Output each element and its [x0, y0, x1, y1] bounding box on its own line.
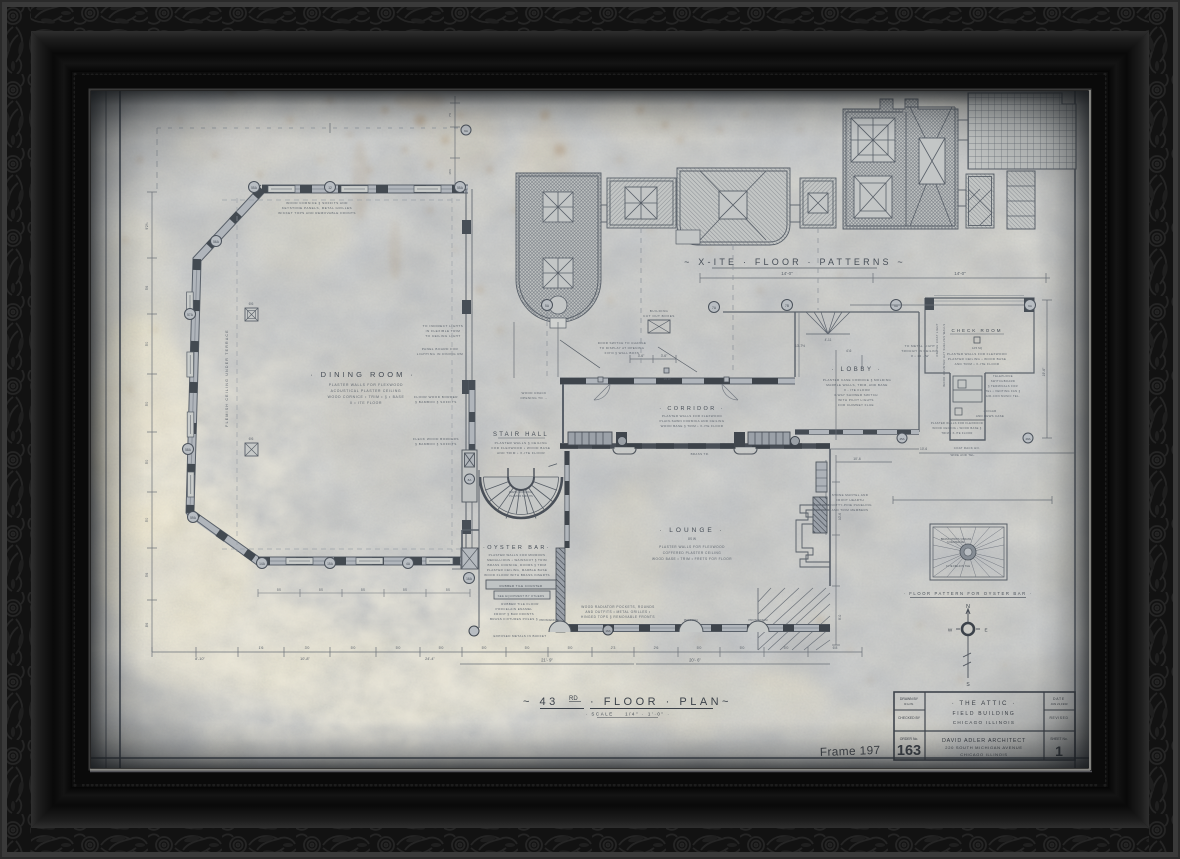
svg-text:9A: 9A	[1028, 304, 1032, 308]
svg-text:WIRE AND TEL.: WIRE AND TEL.	[950, 453, 975, 457]
svg-text:5'0: 5'0	[361, 588, 365, 592]
svg-text:3'-6": 3'-6"	[661, 354, 668, 358]
svg-text:6'6: 6'6	[249, 437, 254, 441]
svg-text:5'0: 5'0	[319, 588, 323, 592]
svg-text:COFFERED PLASTER CEILING: COFFERED PLASTER CEILING	[663, 551, 722, 555]
svg-text:ACOUSTICAL PLASTER CEILING: ACOUSTICAL PLASTER CEILING	[331, 389, 402, 393]
svg-text:PROSCEN.: PROSCEN.	[684, 618, 699, 622]
svg-text:CUT OUT BOXES: CUT OUT BOXES	[643, 314, 675, 318]
svg-text:TO INDIRECT LIGHTS: TO INDIRECT LIGHTS	[423, 324, 464, 328]
svg-text:13'-7½: 13'-7½	[795, 344, 805, 348]
svg-text:RUBBER TILE COUNTER: RUBBER TILE COUNTER	[500, 584, 543, 588]
svg-text:WOOD CEILING • WOOD BASE §: WOOD CEILING • WOOD BASE §	[932, 426, 981, 430]
svg-text:14A: 14A	[259, 562, 266, 566]
svg-text:8'0 W: 8'0 W	[688, 537, 696, 541]
svg-text:PLASTER CASE CORNICE § MOL: PLASTER CASE CORNICE § MOLDING	[823, 378, 892, 382]
svg-text:· SCALE 1/4" · 1'·0" ·: · SCALE 1/4" · 1'·0" ·	[586, 712, 671, 717]
svg-text:5'0: 5'0	[697, 646, 702, 650]
svg-text:DOOR SWITCH TO CHANGE: DOOR SWITCH TO CHANGE	[598, 341, 647, 345]
svg-text:45A: 45A	[899, 437, 904, 441]
svg-text:5'0: 5'0	[403, 588, 407, 592]
svg-text:PLASTER WALLS FOR FLEXWOOD: PLASTER WALLS FOR FLEXWOOD	[662, 414, 723, 418]
svg-text:3'0: 3'0	[305, 646, 310, 650]
svg-text:16'6: 16'6	[448, 169, 452, 175]
svg-text:PLASTER WALLS FOR FLEXWOOD: PLASTER WALLS FOR FLEXWOOD	[659, 545, 725, 549]
svg-text:6'8: 6'8	[833, 646, 838, 650]
svg-text:4'-6: 4'-6	[846, 349, 852, 353]
svg-text:21'- 9": 21'- 9"	[541, 658, 553, 663]
svg-text:AND NEWS CASE: AND NEWS CASE	[976, 414, 1004, 418]
svg-text:X-ITE FIELD IN TILE: X-ITE FIELD IN TILE	[946, 564, 970, 568]
svg-text:OPENING TO →: OPENING TO →	[520, 396, 547, 400]
svg-text:WITH PILOT LIGHTS: WITH PILOT LIGHTS	[838, 398, 874, 402]
svg-text:§ TERMINALS FOR: § TERMINALS FOR	[988, 384, 1018, 388]
svg-text:6'6: 6'6	[249, 302, 254, 306]
svg-text:24'-4": 24'-4"	[425, 657, 435, 661]
svg-text:COAT RACK HO.: COAT RACK HO.	[954, 446, 980, 450]
svg-text:WOOD RADIATOR POCKETS, ROUND: WOOD RADIATOR POCKETS, ROUNDS	[581, 605, 655, 609]
svg-text:·OYSTER BAR·: ·OYSTER BAR·	[483, 545, 551, 551]
svg-text:ON THE COAT LIGHT: ON THE COAT LIGHT	[935, 323, 939, 357]
svg-text:TELEPHONE: TELEPHONE	[993, 374, 1013, 378]
svg-text:· LOBBY ·: · LOBBY ·	[832, 367, 883, 373]
svg-text:55A: 55A	[457, 186, 464, 190]
svg-text:FRONT HEARTH: FRONT HEARTH	[836, 498, 864, 502]
svg-text:TRIM • X-ITE FLOOR: TRIM • X-ITE FLOOR	[941, 431, 972, 435]
svg-text:8'-0: 8'-0	[838, 615, 842, 620]
svg-text:5'0: 5'0	[145, 518, 149, 523]
svg-text:BRASS TR.: BRASS TR.	[691, 452, 710, 456]
svg-text:8'6: 8'6	[145, 623, 149, 628]
svg-text:~: ~	[722, 696, 728, 708]
svg-text:· LOUNGE ·: · LOUNGE ·	[659, 527, 724, 534]
svg-text:PLASTER WALLS FOR FLEXWOOD: PLASTER WALLS FOR FLEXWOOD	[947, 352, 1008, 356]
svg-text:56A: 56A	[213, 240, 220, 244]
svg-text:10'-6: 10'-6	[838, 513, 842, 520]
svg-text:~ X-ITE · FLOOR · PATTERNS ~: ~ X-ITE · FLOOR · PATTERNS ~	[684, 257, 906, 267]
svg-text:57A: 57A	[187, 313, 194, 317]
svg-text:PROSCENIUM: PROSCENIUM	[749, 618, 769, 622]
svg-text:FRONT § BAR FRONTS: FRONT § BAR FRONTS	[494, 612, 534, 616]
svg-text:5'6: 5'6	[145, 573, 149, 578]
svg-text:FIX'D § WALL BOXS: FIX'D § WALL BOXS	[605, 351, 640, 355]
svg-text:8A: 8A	[468, 478, 472, 482]
svg-text:PANEL BOARD FOR: PANEL BOARD FOR	[422, 347, 459, 351]
svg-text:RUBBER TILE FLOOR: RUBBER TILE FLOOR	[501, 602, 539, 606]
svg-text:PLASTER WALLS FOR FLEXWOOD: PLASTER WALLS FOR FLEXWOOD	[329, 383, 403, 387]
svg-text:5'0: 5'0	[277, 588, 281, 592]
svg-text:WOOD FLOOR WITH BRASS INSE: WOOD FLOOR WITH BRASS INSERTS	[484, 573, 550, 577]
svg-text:9'2¾: 9'2¾	[145, 222, 149, 229]
svg-text:TROUGH IN CEILING: TROUGH IN CEILING	[901, 349, 939, 353]
svg-text:16A: 16A	[605, 629, 610, 633]
svg-text:FLECK WOOD BORDERS: FLECK WOOD BORDERS	[413, 437, 459, 441]
svg-text:FOR CHIMNEY FLUE: FOR CHIMNEY FLUE	[838, 403, 874, 407]
svg-text:· FLOOR · PLAN: · FLOOR · PLAN	[590, 696, 722, 708]
svg-text:5'0: 5'0	[439, 646, 444, 650]
svg-text:5'6: 5'6	[145, 286, 149, 291]
svg-text:58A: 58A	[185, 448, 192, 452]
svg-text:LIGHTING IN DINING RM: LIGHTING IN DINING RM	[417, 352, 463, 356]
svg-text:MEDALLIONS • WAINSCOT § TRIM: MEDALLIONS • WAINSCOT § TRIM	[487, 558, 547, 562]
svg-text:· FLOOR PATTERN FOR OYSTER: · FLOOR PATTERN FOR OYSTER BAR ·	[904, 591, 1033, 596]
svg-text:AND TRIM MEMBERS: AND TRIM MEMBERS	[832, 508, 869, 512]
svg-text:12: 12	[328, 186, 332, 190]
svg-text:14'-0": 14'-0"	[781, 271, 793, 276]
svg-text:TO CEILING LIGHT: TO CEILING LIGHT	[425, 334, 460, 338]
svg-text:3'-6": 3'-6"	[638, 354, 645, 358]
svg-text:TEL • VENTING FAN §: TEL • VENTING FAN §	[985, 389, 1020, 393]
svg-text:WICKET TOPS AND REMOVABLE FRON: WICKET TOPS AND REMOVABLE FRONTS	[278, 211, 356, 215]
svg-text:5'0: 5'0	[145, 342, 149, 347]
svg-text:W: W	[948, 628, 953, 633]
svg-text:§ BAMBOO § SOFFITS: § BAMBOO § SOFFITS	[415, 400, 457, 404]
svg-text:12'6 SQ: 12'6 SQ	[972, 346, 983, 350]
svg-text:10'-6: 10'-6	[853, 457, 861, 461]
svg-text:PLASTER CEILING, MARBLE BASE: PLASTER CEILING, MARBLE BASE	[487, 568, 548, 572]
svg-text:PROSCENIUM: PROSCENIUM	[540, 618, 560, 622]
svg-text:CHECKED BY: CHECKED BY	[898, 716, 921, 720]
svg-text:BRASS FIXTURES POLES §: BRASS FIXTURES POLES §	[490, 617, 538, 621]
svg-text:DRAWN BY: DRAWN BY	[900, 697, 919, 701]
svg-text:AND OUTFITS • METAL GRILLES: AND OUTFITS • METAL GRILLES •	[585, 610, 650, 614]
svg-text:PLASTER WALLS § CEILING: PLASTER WALLS § CEILING	[495, 441, 548, 445]
svg-text:PLASTER WALLS FOR MIRRORS: PLASTER WALLS FOR MIRRORS	[489, 553, 546, 557]
svg-text:5'0: 5'0	[740, 646, 745, 650]
svg-text:AND TRIM • X-ITE FLOOR: AND TRIM • X-ITE FLOOR	[955, 362, 1000, 366]
svg-text:PORCELAIN ENAMEL: PORCELAIN ENAMEL	[496, 607, 533, 611]
svg-text:E: E	[984, 628, 987, 633]
svg-text:FRETS WOOD RAIL: FRETS WOOD RAIL	[509, 490, 534, 494]
svg-text:AIR-CON MUSIC TEL.: AIR-CON MUSIC TEL.	[986, 394, 1020, 398]
svg-text:X • ITE FLOOR: X • ITE FLOOR	[350, 401, 382, 405]
svg-text:WOOD CORNICE • TRIM • § • BAS: WOOD CORNICE • TRIM • § • BASE	[328, 395, 405, 399]
svg-text:SEE EQUIPMENT BY OTHERS: SEE EQUIPMENT BY OTHERS	[498, 594, 545, 598]
svg-text:2'6: 2'6	[654, 646, 659, 650]
svg-text:IN FLEXIBLE TRIM: IN FLEXIBLE TRIM	[426, 329, 461, 333]
svg-text:FLOOR WOOD BORDER: FLOOR WOOD BORDER	[414, 395, 458, 399]
svg-text:5'0: 5'0	[145, 402, 149, 407]
svg-text:CHECK ROOM: CHECK ROOM	[951, 328, 1002, 333]
svg-text:AND TRIM • X-ITE FLOOR: AND TRIM • X-ITE FLOOR	[497, 451, 545, 455]
svg-text:• CIGAR: • CIGAR	[983, 409, 996, 413]
svg-text:WOOD CORNICE § SOFFITS AND: WOOD CORNICE § SOFFITS AND	[286, 201, 348, 205]
svg-text:5'0: 5'0	[446, 588, 450, 592]
svg-text:5'0: 5'0	[396, 646, 401, 650]
svg-text:7B: 7B	[785, 304, 789, 308]
svg-text:5'0: 5'0	[784, 646, 789, 650]
svg-text:FLEMISH CEILING UNDER TERRA: FLEMISH CEILING UNDER TERRACE	[225, 329, 229, 427]
svg-text:X - ITE FLOOR: X - ITE FLOOR	[844, 388, 871, 392]
svg-text:3-WAY SHOWER SWITCH: 3-WAY SHOWER SWITCH	[834, 393, 878, 397]
svg-text:WOOD BASE • TRIM • FRETS FOR: WOOD BASE • TRIM • FRETS FOR FLOOR	[652, 557, 732, 561]
svg-text:KNOTTY-PINE PANELING: KNOTTY-PINE PANELING	[828, 503, 872, 507]
svg-text:STONE MANTEL AND: STONE MANTEL AND	[832, 493, 869, 497]
svg-text:· DINING ROOM ·: · DINING ROOM ·	[310, 370, 416, 379]
svg-text:5'0: 5'0	[145, 460, 149, 465]
svg-text:R.H.W.: R.H.W.	[904, 702, 914, 706]
svg-text:49A: 49A	[1025, 437, 1030, 441]
svg-text:20'- 6": 20'- 6"	[689, 658, 701, 663]
svg-text:FOR FLEXWOOD • WOOD BASE: FOR FLEXWOOD • WOOD BASE	[492, 446, 551, 450]
svg-text:8 • 10 - W: 8 • 10 - W	[911, 354, 929, 358]
svg-text:59A: 59A	[190, 516, 197, 520]
svg-text:5'0: 5'0	[525, 646, 530, 650]
svg-text:1'0 W: 1'0 W	[663, 377, 670, 381]
svg-text:STAIR HALL: STAIR HALL	[493, 432, 549, 438]
svg-text:EXPOSED METALS IN BUFFET: EXPOSED METALS IN BUFFET	[493, 634, 546, 638]
svg-text:PLASTER CEILING • WOOD BASE: PLASTER CEILING • WOOD BASE	[948, 357, 1007, 361]
svg-text:15A: 15A	[327, 562, 334, 566]
svg-text:9A: 9A	[894, 304, 898, 308]
svg-text:TO METAL LIGHT: TO METAL LIGHT	[905, 344, 936, 348]
svg-text:4'-11: 4'-11	[825, 338, 832, 342]
svg-text:PLASTER WALLS FOR FLEXWOOD: PLASTER WALLS FOR FLEXWOOD	[931, 421, 983, 425]
svg-text:10'-8": 10'-8"	[300, 657, 310, 661]
svg-text:2'3: 2'3	[611, 646, 616, 650]
svg-text:RD: RD	[569, 696, 578, 702]
svg-text:HINGED TOPS § REMOVABLE FR: HINGED TOPS § REMOVABLE FRONTS	[581, 615, 655, 619]
svg-text:PLASTER SOFFITS: PLASTER SOFFITS	[509, 494, 533, 498]
svg-text:14'-0": 14'-0"	[954, 271, 966, 276]
svg-text:MARBLE WALLS, TRIM, AND BASE: MARBLE WALLS, TRIM, AND BASE	[826, 383, 888, 387]
svg-text:5'0: 5'0	[482, 646, 487, 650]
svg-text:SWITCHBOARD: SWITCHBOARD	[991, 379, 1016, 383]
svg-text:BRASS CORNICE, DOORS § TRIM: BRASS CORNICE, DOORS § TRIM	[488, 563, 547, 567]
svg-text:~ 43: ~ 43	[523, 696, 559, 708]
svg-text:16A: 16A	[466, 577, 473, 581]
svg-text:BUILDING: BUILDING	[650, 309, 669, 313]
svg-text:KEYSTONE PANELS, METAL GRILLES: KEYSTONE PANELS, METAL GRILLES	[282, 206, 352, 210]
svg-text:WOOD CRACK: WOOD CRACK	[522, 391, 547, 395]
svg-text:WOOD BASE § TRIM • X-ITE F: WOOD BASE § TRIM • X-ITE FLOOR	[661, 424, 724, 428]
svg-text:5'0: 5'0	[568, 646, 573, 650]
svg-text:· CORRIDOR ·: · CORRIDOR ·	[659, 406, 724, 412]
svg-text:§ BAMBOO § SOFFITS: § BAMBOO § SOFFITS	[415, 442, 457, 446]
svg-text:10'-6: 10'-6	[920, 447, 927, 451]
svg-text:TO DISPLAY AT OPENING: TO DISPLAY AT OPENING	[600, 346, 645, 350]
svg-text:5'0: 5'0	[351, 646, 356, 650]
svg-text:WOOD COUNTER HAT SHELVES WAL: WOOD COUNTER HAT SHELVES WALLS	[942, 323, 946, 386]
svg-text:§ CENTER RE.: § CENTER RE.	[947, 540, 965, 544]
svg-text:PLAIN-SAWN FORMICA AND CEIL: PLAIN-SAWN FORMICA AND CEILING	[660, 419, 725, 423]
